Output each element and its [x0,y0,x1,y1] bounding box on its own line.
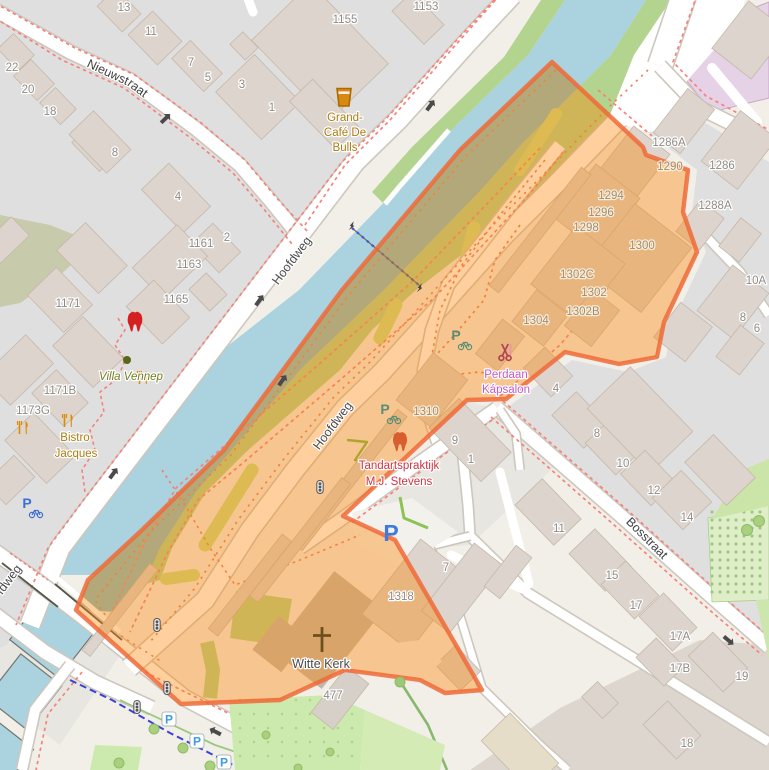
svg-text:1173G: 1173G [16,405,50,417]
svg-text:15: 15 [606,570,619,582]
svg-text:7: 7 [188,57,194,69]
svg-text:13: 13 [118,2,131,14]
svg-text:1153: 1153 [414,1,439,13]
svg-text:1318: 1318 [388,591,414,603]
svg-text:1302C: 1302C [560,269,594,281]
svg-text:1286A: 1286A [652,137,686,149]
svg-text:Café De: Café De [324,127,366,139]
svg-text:20: 20 [22,84,35,96]
svg-text:5: 5 [205,72,211,84]
svg-text:12: 12 [648,485,661,497]
svg-text:4: 4 [553,383,560,395]
svg-text:477: 477 [323,690,342,702]
svg-text:1161: 1161 [189,238,214,250]
svg-text:Bistro: Bistro [60,432,89,444]
svg-text:8: 8 [740,312,746,324]
svg-text:P: P [451,327,460,343]
svg-text:1: 1 [468,454,474,466]
svg-text:7: 7 [443,562,449,574]
svg-text:1298: 1298 [573,222,599,234]
svg-text:1: 1 [269,102,275,114]
svg-text:P: P [22,495,31,511]
svg-text:1302B: 1302B [566,306,600,318]
svg-text:6: 6 [754,323,760,335]
svg-text:11: 11 [553,523,565,535]
svg-text:11: 11 [145,26,157,38]
svg-text:Grand-: Grand- [327,112,363,124]
svg-text:Witte Kerk: Witte Kerk [292,657,350,671]
svg-text:Perdaan: Perdaan [484,369,527,381]
svg-text:1294: 1294 [598,190,624,202]
svg-text:P: P [165,713,173,727]
svg-text:M.J. Stevens: M.J. Stevens [366,476,433,488]
svg-text:1300: 1300 [629,240,655,252]
svg-text:Villa Vennep: Villa Vennep [99,371,164,383]
svg-text:1304: 1304 [523,315,549,327]
svg-text:1165: 1165 [164,294,189,306]
svg-text:P: P [383,520,398,546]
svg-text:3: 3 [239,79,245,91]
svg-text:1171: 1171 [56,298,81,310]
svg-text:17B: 17B [670,663,691,675]
svg-text:4: 4 [175,191,182,203]
svg-text:10: 10 [617,458,630,470]
svg-text:P: P [193,735,201,749]
svg-text:19: 19 [736,671,749,683]
svg-text:1310: 1310 [413,406,439,418]
svg-text:P: P [220,756,228,770]
svg-text:17A: 17A [670,631,691,643]
svg-text:Jacques: Jacques [55,448,98,460]
svg-text:22: 22 [6,62,19,74]
svg-text:18: 18 [681,738,694,750]
svg-text:1163: 1163 [177,259,202,271]
svg-text:17: 17 [630,600,643,612]
svg-text:18: 18 [44,106,57,118]
svg-text:P: P [380,401,389,417]
svg-text:1155: 1155 [333,14,358,26]
svg-text:2: 2 [224,232,230,244]
svg-text:14: 14 [681,512,694,524]
svg-text:1302: 1302 [581,287,607,299]
svg-text:8: 8 [112,147,118,159]
svg-text:1171B: 1171B [44,385,77,397]
svg-text:Tandartspraktijk: Tandartspraktijk [359,460,440,472]
svg-text:10A: 10A [746,275,767,287]
svg-text:1288A: 1288A [698,200,732,212]
svg-text:Bulls: Bulls [333,142,358,154]
svg-text:1290: 1290 [657,161,683,173]
svg-text:Kápsalon: Kápsalon [482,384,530,396]
svg-text:1286: 1286 [709,160,735,172]
svg-text:8: 8 [594,428,600,440]
svg-text:9: 9 [452,435,458,447]
svg-text:1296: 1296 [588,207,614,219]
